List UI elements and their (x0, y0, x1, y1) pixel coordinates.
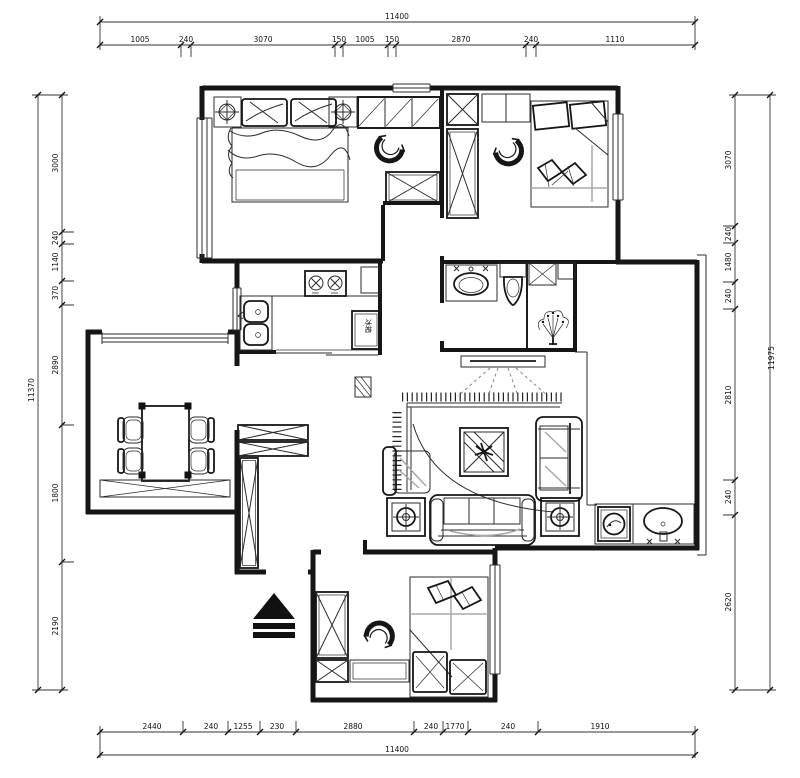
dim-bottom-seg: 2440 (142, 722, 161, 731)
dim-bottom-seg: 230 (270, 722, 285, 731)
dim-left-seg: 370 (51, 286, 60, 301)
interior-walls (237, 88, 618, 552)
dim-top-overall: 11400 (385, 12, 409, 21)
dimension-top: 11400 1005 240 3070 150 1005 150 2870 24… (97, 12, 698, 57)
bathroom (446, 263, 575, 345)
double-bed (228, 99, 350, 202)
stove (305, 271, 346, 296)
dim-top-seg: 1005 (130, 35, 149, 44)
wardrobe (316, 592, 348, 658)
bedroom-3 (316, 577, 488, 697)
tall-cabinet (240, 458, 258, 568)
dim-left-seg: 3000 (51, 153, 60, 172)
exterior-walls (86, 86, 699, 702)
dim-bottom-seg: 240 (424, 722, 439, 731)
shower-sprinkler-icon (538, 311, 568, 345)
single-bed (410, 577, 488, 697)
dim-right-seg: 2620 (724, 592, 733, 611)
window-seat (100, 480, 230, 497)
closet-cabinet (386, 172, 440, 203)
dim-top-seg: 1110 (605, 35, 624, 44)
entrance-arrow-icon (253, 593, 295, 638)
dimension-bottom: 11400 2440 240 1255 230 2880 240 1770 24… (97, 721, 698, 758)
counter-return (361, 267, 380, 293)
dining-chair (118, 448, 143, 474)
dim-right-seg: 1480 (724, 252, 733, 271)
living-room (383, 397, 582, 545)
toilet (500, 263, 526, 305)
dim-top-seg: 150 (385, 35, 400, 44)
ceiling-lamp-icon (331, 100, 355, 124)
master-bedroom (214, 97, 440, 203)
dimension-left: 11370 3000 240 1140 370 2890 1800 2190 (27, 92, 74, 693)
dim-bottom-seg: 240 (501, 722, 516, 731)
armchair-icon (491, 136, 528, 170)
dining-chair (189, 417, 214, 443)
wardrobe (358, 97, 440, 128)
wardrobe (447, 129, 478, 218)
dim-bottom-seg: 240 (204, 722, 219, 731)
dim-right-seg: 240 (724, 490, 733, 505)
dim-top-seg: 240 (524, 35, 539, 44)
dining-room (100, 403, 230, 498)
coffee-table (460, 428, 508, 476)
dim-left-seg: 1140 (51, 252, 60, 271)
dim-left-seg: 1800 (51, 483, 60, 502)
dining-table (139, 403, 192, 482)
washing-machine (598, 507, 630, 541)
dimension-right: 11975 3070 240 1480 240 2810 240 2620 (723, 92, 776, 693)
armchair-icon (370, 133, 407, 167)
dim-left-seg: 240 (51, 231, 60, 246)
dim-top-seg: 3070 (253, 35, 272, 44)
cabinet (316, 660, 409, 682)
dim-top-seg: 2870 (451, 35, 470, 44)
loveseat (536, 417, 582, 501)
dim-bottom-overall: 11400 (385, 745, 409, 754)
sofa (430, 495, 535, 545)
dim-bottom-seg: 1770 (445, 722, 464, 731)
end-table-lamp-icon (387, 498, 425, 536)
dim-bottom-seg: 2880 (343, 722, 362, 731)
dining-chair (189, 448, 214, 474)
dining-chair (118, 417, 143, 443)
dim-right-seg: 3070 (724, 150, 733, 169)
dim-top-seg: 150 (332, 35, 347, 44)
bedroom-2 (447, 94, 608, 218)
laundry-area (595, 504, 694, 544)
shoe-cabinet (238, 425, 308, 456)
tv-console (458, 356, 548, 396)
dim-left-seg: 2190 (51, 616, 60, 635)
end-table-lamp-icon (541, 498, 579, 536)
dim-right-seg: 2810 (724, 385, 733, 404)
dim-top-seg: 240 (179, 35, 194, 44)
single-bed (531, 101, 608, 207)
dim-bottom-seg: 1910 (590, 722, 609, 731)
fridge-label: 冰箱 (364, 319, 373, 333)
kitchen: 冰箱 (238, 267, 380, 350)
dim-left-seg: 2890 (51, 355, 60, 374)
dim-bottom-seg: 1255 (233, 722, 252, 731)
dim-right-seg: 240 (724, 227, 733, 242)
dim-right-overall: 11975 (767, 346, 776, 370)
armchair-icon (362, 619, 398, 650)
fridge: 冰箱 (352, 311, 380, 349)
laundry-basin (644, 508, 682, 544)
floor-plan-page: 11400 1005 240 3070 150 1005 150 2870 24… (0, 0, 800, 778)
sink (238, 296, 272, 350)
cabinet (529, 263, 575, 285)
dim-right-seg: 240 (724, 289, 733, 304)
dim-top-seg: 1005 (355, 35, 374, 44)
wash-basin (446, 265, 497, 301)
column (355, 377, 371, 397)
cabinet (447, 94, 478, 125)
foyer (238, 377, 371, 638)
floor-plan-canvas: 11400 1005 240 3070 150 1005 150 2870 24… (0, 0, 800, 778)
ceiling-lamp-icon (215, 100, 239, 124)
dim-left-overall: 11370 (27, 378, 36, 402)
